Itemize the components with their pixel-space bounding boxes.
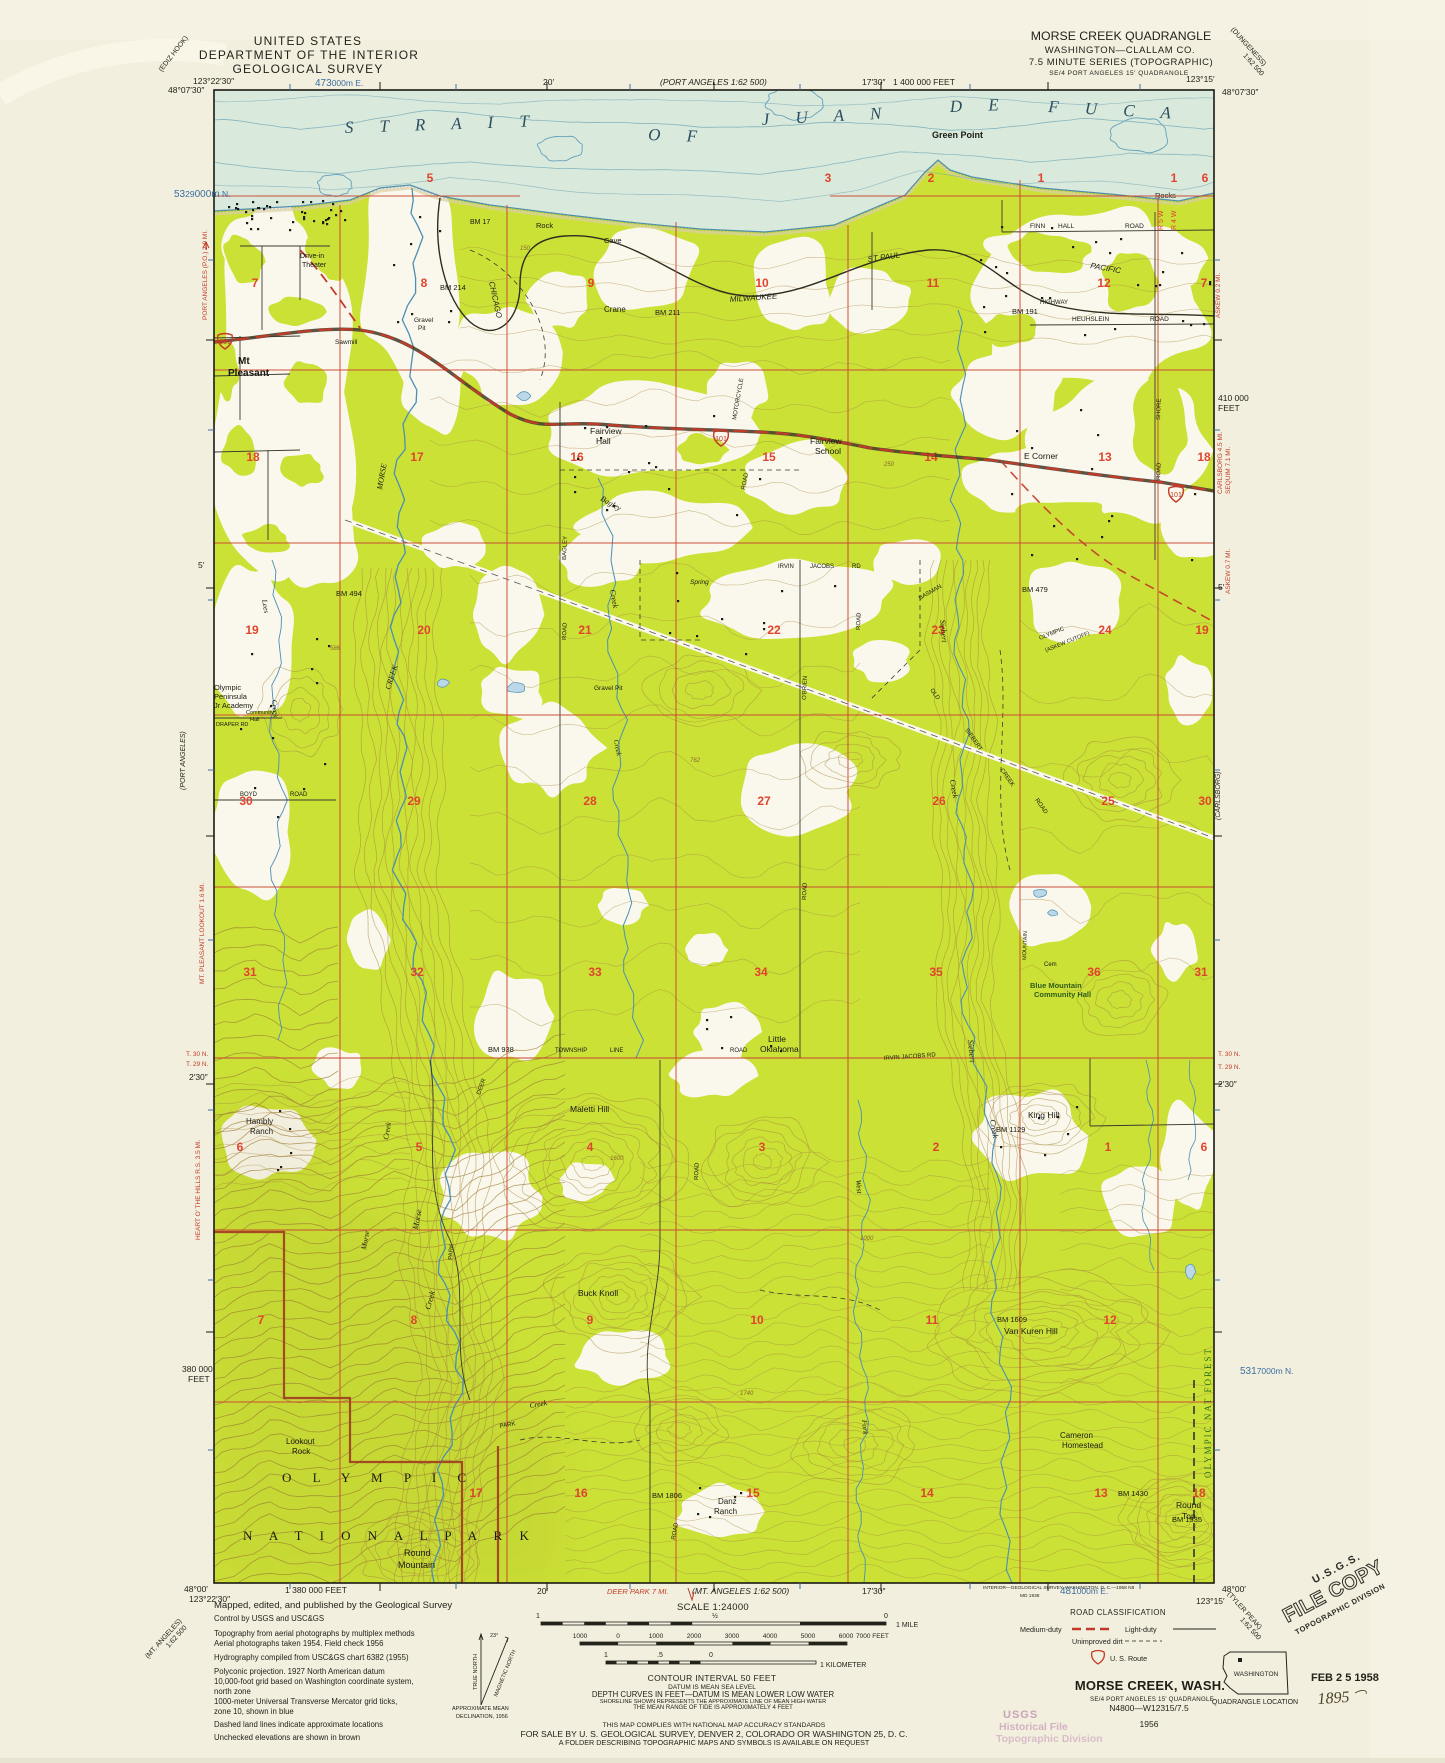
svg-text:Van Kuren Hill: Van Kuren Hill [1004, 1326, 1058, 1336]
svg-text:1: 1 [1105, 1140, 1112, 1154]
svg-text:10: 10 [750, 1313, 764, 1327]
svg-text:O'BRIEN: O'BRIEN [802, 676, 809, 700]
svg-text:473000m E.: 473000m E. [315, 78, 363, 89]
svg-text:SCALE 1:24000: SCALE 1:24000 [677, 1602, 749, 1613]
svg-text:2′30″: 2′30″ [189, 1072, 208, 1082]
svg-text:WASHINGTON: WASHINGTON [1234, 1671, 1279, 1678]
svg-text:6: 6 [1201, 1140, 1208, 1154]
svg-text:GEOLOGICAL SURVEY: GEOLOGICAL SURVEY [232, 62, 383, 76]
svg-text:Hambly: Hambly [246, 1117, 273, 1126]
svg-text:8: 8 [411, 1313, 418, 1327]
svg-text:1895: 1895 [1317, 1689, 1350, 1708]
svg-text:2: 2 [928, 171, 935, 185]
svg-text:13: 13 [1094, 1486, 1108, 1500]
svg-text:17′30″: 17′30″ [862, 1586, 886, 1596]
svg-text:35: 35 [929, 965, 943, 979]
svg-text:101: 101 [715, 436, 727, 443]
svg-text:BM 1609: BM 1609 [997, 1315, 1027, 1324]
svg-text:23°: 23° [490, 1633, 498, 1639]
svg-text:2000: 2000 [687, 1633, 702, 1640]
svg-text:5′: 5′ [198, 560, 205, 570]
svg-text:1: 1 [1038, 171, 1045, 185]
svg-text:King Hill: King Hill [1028, 1110, 1059, 1120]
svg-text:Mountain: Mountain [398, 1560, 435, 1570]
svg-text:29: 29 [407, 794, 421, 808]
svg-text:N A T I O N A L P A R K: N A T I O N A L P A R K [243, 1528, 536, 1543]
svg-text:Aerial photographs taken 1954.: Aerial photographs taken 1954. Field che… [214, 1639, 383, 1648]
svg-text:north zone: north zone [214, 1687, 251, 1696]
svg-text:FINN: FINN [1030, 223, 1045, 230]
svg-text:4: 4 [587, 1140, 594, 1154]
svg-text:30: 30 [1198, 794, 1212, 808]
svg-text:150: 150 [520, 246, 531, 252]
svg-text:BM 214: BM 214 [440, 283, 466, 292]
svg-text:ROAD: ROAD [802, 882, 809, 900]
svg-text:Topographic Division: Topographic Division [996, 1733, 1103, 1745]
svg-text:Pit: Pit [418, 325, 426, 332]
svg-text:BM 1806: BM 1806 [652, 1491, 682, 1500]
svg-text:123°15′: 123°15′ [1186, 74, 1215, 84]
svg-text:9: 9 [587, 1313, 594, 1327]
svg-text:1 MILE: 1 MILE [896, 1622, 919, 1629]
svg-text:21: 21 [578, 623, 592, 637]
svg-text:BM 1129: BM 1129 [996, 1125, 1025, 1134]
svg-text:Historical File: Historical File [999, 1721, 1068, 1733]
svg-text:TRUE NORTH: TRUE NORTH [473, 1654, 479, 1690]
svg-text:HEART O’ THE HILLS R.S. 3.5 MI: HEART O’ THE HILLS R.S. 3.5 MI. [195, 1139, 202, 1240]
svg-text:ROAD: ROAD [1125, 223, 1144, 230]
svg-text:T. 29 N.: T. 29 N. [186, 1061, 209, 1068]
svg-text:WASHINGTON—CLALLAM CO.: WASHINGTON—CLALLAM CO. [1045, 45, 1195, 56]
svg-text:ROAD: ROAD [1150, 316, 1169, 323]
svg-text:West: West [854, 1179, 864, 1195]
svg-text:Medium-duty: Medium-duty [1020, 1625, 1062, 1634]
svg-text:20: 20 [417, 623, 431, 637]
svg-text:11: 11 [926, 1313, 939, 1327]
svg-text:31: 31 [1194, 965, 1208, 979]
svg-text:FEET: FEET [1218, 403, 1240, 413]
svg-text:25: 25 [1101, 794, 1115, 808]
svg-text:INTERIOR—GEOLOGICAL SURVEY, WA: INTERIOR—GEOLOGICAL SURVEY, WASHINGTON, … [983, 1585, 1135, 1591]
svg-text:APPROXIMATE MEAN: APPROXIMATE MEAN [452, 1706, 509, 1712]
svg-text:Green Point: Green Point [932, 130, 983, 140]
svg-text:48°07′30″: 48°07′30″ [168, 85, 204, 95]
svg-text:Hall: Hall [250, 717, 259, 723]
svg-text:12: 12 [1097, 276, 1111, 290]
svg-text:R 5 W: R 5 W [1158, 210, 1165, 230]
svg-text:1600: 1600 [610, 1156, 624, 1162]
svg-text:BM 479: BM 479 [1022, 585, 1048, 594]
svg-text:DRAPER RD: DRAPER RD [216, 722, 248, 728]
svg-text:MD 1938: MD 1938 [1020, 1593, 1040, 1599]
svg-text:HEUHSLEIN: HEUHSLEIN [1072, 316, 1110, 323]
svg-text:7.5 MINUTE SERIES (TOPOGRAPHIC: 7.5 MINUTE SERIES (TOPOGRAPHIC) [1029, 57, 1213, 68]
svg-text:BM 211: BM 211 [655, 308, 680, 317]
svg-text:5000: 5000 [801, 1633, 816, 1640]
svg-text:ROAD: ROAD [290, 792, 308, 798]
svg-text:Community Hall: Community Hall [1034, 990, 1091, 999]
svg-text:250: 250 [883, 462, 895, 468]
svg-text:18: 18 [246, 450, 260, 464]
svg-text:32: 32 [410, 965, 424, 979]
svg-text:7: 7 [258, 1313, 265, 1327]
svg-text:SE/4 PORT ANGELES 15′ QUADRANG: SE/4 PORT ANGELES 15′ QUADRANGLE [1090, 1696, 1214, 1703]
svg-text:0: 0 [616, 1633, 620, 1640]
svg-text:20′: 20′ [537, 1586, 548, 1596]
svg-text:1000: 1000 [649, 1633, 664, 1640]
svg-text:16: 16 [574, 1486, 588, 1500]
svg-text:0: 0 [709, 1652, 713, 1659]
svg-text:3: 3 [759, 1140, 766, 1154]
svg-text:E Corner: E Corner [1024, 451, 1058, 461]
svg-text:Rock: Rock [536, 221, 553, 230]
svg-text:3000: 3000 [725, 1633, 740, 1640]
svg-text:Mapped, edited, and published: Mapped, edited, and published by the Geo… [214, 1600, 452, 1611]
svg-text:7: 7 [1201, 276, 1208, 290]
svg-text:BM 17: BM 17 [470, 219, 490, 226]
svg-text:Homestead: Homestead [1062, 1441, 1103, 1450]
svg-text:1956: 1956 [1140, 1719, 1159, 1729]
svg-text:SHORE: SHORE [1156, 399, 1163, 421]
svg-text:7000 FEET: 7000 FEET [856, 1633, 889, 1640]
svg-text:Polyconic projection. 1927: Polyconic projection. 1927 North America… [214, 1667, 385, 1676]
svg-text:22: 22 [767, 623, 781, 637]
svg-text:Buck Knoll: Buck Knoll [578, 1288, 618, 1298]
svg-text:0: 0 [884, 1613, 888, 1620]
svg-text:27: 27 [757, 794, 771, 808]
svg-text:Fairview: Fairview [810, 436, 843, 446]
svg-text:SE/4 PORT ANGELES 15′ QUADRANG: SE/4 PORT ANGELES 15′ QUADRANGLE [1049, 70, 1189, 77]
svg-text:T. 30 N.: T. 30 N. [1218, 1051, 1241, 1058]
svg-text:DECLINATION, 1956: DECLINATION, 1956 [456, 1714, 508, 1720]
svg-text:1: 1 [536, 1613, 540, 1620]
svg-text:Oklahoma: Oklahoma [760, 1044, 799, 1054]
svg-text:TOWNSHIP: TOWNSHIP [555, 1048, 587, 1054]
svg-text:1 380 000 FEET: 1 380 000 FEET [285, 1585, 347, 1595]
svg-text:ROAD: ROAD [856, 612, 863, 630]
svg-text:Jr Academy: Jr Academy [214, 701, 253, 710]
svg-text:6: 6 [237, 1140, 244, 1154]
svg-text:17′30″: 17′30″ [862, 77, 886, 87]
svg-text:28: 28 [583, 794, 597, 808]
svg-text:1000: 1000 [573, 1633, 588, 1640]
svg-text:Round: Round [1176, 1500, 1201, 1510]
svg-text:3: 3 [825, 171, 832, 185]
svg-text:(PORT ANGELES): (PORT ANGELES) [180, 731, 187, 790]
svg-text:1740: 1740 [740, 1391, 754, 1397]
svg-text:BM 191: BM 191 [1012, 307, 1038, 316]
svg-text:(CARLSBORG): (CARLSBORG) [1215, 771, 1222, 820]
svg-text:IRVIN: IRVIN [778, 564, 794, 570]
svg-text:Olympic: Olympic [214, 683, 241, 692]
svg-text:CARLSBORG 4.5 MI.: CARLSBORG 4.5 MI. [1217, 431, 1224, 494]
svg-text:JACOBS: JACOBS [810, 564, 834, 570]
svg-text:Cem: Cem [1044, 962, 1057, 968]
svg-text:FEB 2 5 1958: FEB 2 5 1958 [1311, 1672, 1379, 1684]
svg-text:1: 1 [1171, 171, 1178, 185]
svg-text:Gravel: Gravel [414, 317, 434, 324]
svg-text:1000-meter Universal Transvers: 1000-meter Universal Transverse Mercator… [214, 1697, 397, 1706]
svg-text:Dashed land lines indicate app: Dashed land lines indicate approximate l… [214, 1720, 383, 1729]
svg-text:Crane: Crane [604, 305, 626, 314]
svg-text:N4800—W12315/7.5: N4800—W12315/7.5 [1109, 1703, 1189, 1713]
svg-text:RD: RD [852, 564, 861, 570]
svg-text:17: 17 [410, 450, 424, 464]
svg-text:T. 29 N.: T. 29 N. [1218, 1064, 1241, 1071]
svg-text:Unchecked elevations are shown: Unchecked elevations are shown in brown [214, 1733, 360, 1742]
svg-text:MT. PLEASANT LOOKOUT 1.6 MI.: MT. PLEASANT LOOKOUT 1.6 MI. [199, 883, 206, 984]
svg-text:5329000m N.: 5329000m N. [174, 189, 230, 200]
svg-text:A FOLDER DESCRIBING TOPOGRAPHI: A FOLDER DESCRIBING TOPOGRAPHIC MAPS AND… [559, 1738, 870, 1747]
svg-text:48°00′: 48°00′ [184, 1584, 208, 1594]
svg-text:.5: .5 [657, 1652, 663, 1659]
svg-text:380 000: 380 000 [182, 1364, 213, 1374]
svg-text:6000: 6000 [839, 1633, 854, 1640]
svg-text:Danz: Danz [718, 1497, 737, 1506]
svg-text:BM 1430: BM 1430 [1118, 1489, 1148, 1498]
svg-text:O L Y M P I C: O L Y M P I C [282, 1470, 475, 1485]
svg-text:26: 26 [932, 794, 946, 808]
svg-text:Topography from aerial photogr: Topography from aerial photographs by mu… [214, 1629, 415, 1638]
svg-text:14: 14 [924, 450, 938, 464]
svg-text:31: 31 [243, 965, 257, 979]
svg-text:U. S. Route: U. S. Route [1110, 1654, 1147, 1663]
svg-text:15: 15 [746, 1486, 760, 1500]
svg-text:Rock: Rock [292, 1447, 311, 1456]
svg-text:MORSE CREEK QUADRANGLE: MORSE CREEK QUADRANGLE [1031, 29, 1211, 43]
svg-text:BOYD: BOYD [240, 792, 258, 798]
svg-text:Mt: Mt [238, 356, 250, 367]
svg-text:13: 13 [1098, 450, 1112, 464]
svg-text:586: 586 [330, 646, 341, 652]
svg-text:ROAD: ROAD [730, 1048, 748, 1054]
svg-text:LINE: LINE [610, 1048, 623, 1054]
svg-text:Drive-in: Drive-in [300, 253, 324, 260]
svg-text:THE MEAN RANGE OF TIDE IS APPR: THE MEAN RANGE OF TIDE IS APPROXIMATELY … [633, 1705, 793, 1711]
svg-text:THIS MAP COMPLIES WITH NATIONA: THIS MAP COMPLIES WITH NATIONAL MAP ACCU… [603, 1722, 826, 1729]
svg-text:CONTOUR INTERVAL 50 FEET: CONTOUR INTERVAL 50 FEET [648, 1673, 777, 1683]
svg-text:Hall: Hall [596, 436, 611, 446]
svg-text:Round: Round [404, 1548, 431, 1558]
svg-text:410 000: 410 000 [1218, 393, 1249, 403]
svg-text:D E: D E [948, 95, 1010, 116]
svg-text:OLYMPIC NAT FOREST: OLYMPIC NAT FOREST [1203, 1347, 1213, 1478]
svg-text:10: 10 [755, 276, 769, 290]
svg-text:School: School [815, 446, 841, 456]
svg-text:101: 101 [219, 339, 231, 346]
svg-text:762: 762 [690, 758, 701, 764]
svg-text:20′: 20′ [543, 77, 554, 87]
svg-text:Control by USGS and USC&GS: Control by USGS and USC&GS [214, 1614, 324, 1623]
svg-text:R 4 W: R 4 W [1171, 210, 1178, 230]
svg-text:1 400 000 FEET: 1 400 000 FEET [893, 77, 955, 87]
svg-text:BAGLEY: BAGLEY [562, 536, 569, 560]
svg-text:Spring: Spring [690, 579, 709, 586]
svg-text:12: 12 [1103, 1313, 1117, 1327]
svg-text:zone 10, shown in blue: zone 10, shown in blue [214, 1707, 294, 1716]
svg-text:18: 18 [1197, 450, 1211, 464]
svg-text:(MT. ANGELES 1:62 500): (MT. ANGELES 1:62 500) [692, 1586, 789, 1596]
svg-text:Ranch: Ranch [714, 1507, 737, 1516]
svg-text:33: 33 [588, 965, 602, 979]
svg-text:6: 6 [1202, 171, 1209, 185]
svg-text:BM 494: BM 494 [336, 589, 362, 598]
svg-text:ASKEW 0.7 MI.: ASKEW 0.7 MI. [1225, 549, 1232, 594]
svg-text:Unimproved dirt: Unimproved dirt [1072, 1637, 1123, 1646]
svg-text:Blue Mountain: Blue Mountain [1030, 981, 1082, 990]
svg-text:Sawmill: Sawmill [335, 339, 358, 346]
svg-text:Maletti Hill: Maletti Hill [570, 1104, 609, 1114]
svg-text:10,000-foot grid based on Wash: 10,000-foot grid based on Washington coo… [214, 1677, 414, 1686]
svg-text:24: 24 [1098, 623, 1112, 637]
svg-text:½: ½ [712, 1612, 718, 1620]
svg-text:8: 8 [421, 276, 428, 290]
svg-text:48°00′: 48°00′ [1222, 1584, 1246, 1594]
svg-text:4000: 4000 [763, 1633, 778, 1640]
svg-text:Pleasant: Pleasant [228, 368, 270, 379]
svg-text:Cameron: Cameron [1060, 1431, 1093, 1440]
svg-text:Fairview: Fairview [590, 426, 623, 436]
svg-text:ROAD: ROAD [1156, 462, 1163, 480]
svg-text:17: 17 [469, 1486, 483, 1500]
svg-text:Community: Community [246, 710, 274, 716]
svg-text:5317000m N.: 5317000m N. [1240, 1366, 1294, 1377]
svg-text:Light-duty: Light-duty [1125, 1625, 1157, 1634]
svg-text:481000m E.: 481000m E. [1060, 1586, 1108, 1597]
svg-text:ROAD CLASSIFICATION: ROAD CLASSIFICATION [1070, 1608, 1166, 1617]
svg-text:Gravel Pit: Gravel Pit [594, 685, 623, 692]
svg-text:19: 19 [1195, 623, 1209, 637]
svg-text:Hydrography compiled from USC&: Hydrography compiled from USC&GS chart 6… [214, 1653, 409, 1662]
svg-text:FEET: FEET [188, 1374, 210, 1384]
svg-text:ROAD: ROAD [562, 622, 569, 640]
svg-text:5: 5 [427, 171, 434, 185]
svg-text:9: 9 [588, 276, 595, 290]
svg-text:SEQUIM 7.1 MI.: SEQUIM 7.1 MI. [1225, 446, 1232, 494]
svg-text:34: 34 [754, 965, 768, 979]
svg-text:MOUNTAIN: MOUNTAIN [1022, 931, 1029, 960]
svg-text:DEER PARK 7 MI.: DEER PARK 7 MI. [607, 1587, 669, 1596]
svg-text:Lookout: Lookout [286, 1437, 315, 1446]
svg-text:Theater: Theater [302, 262, 327, 269]
svg-text:Creek: Creek [270, 699, 281, 718]
svg-text:Top: Top [1182, 1511, 1196, 1521]
svg-text:DEPTH CURVES IN FEET—DATUM IS: DEPTH CURVES IN FEET—DATUM IS MEAN LOWER… [592, 1690, 835, 1699]
svg-text:ROAD: ROAD [694, 1162, 701, 1180]
svg-text:MORSE CREEK, WASH.: MORSE CREEK, WASH. [1075, 1678, 1225, 1693]
svg-text:36: 36 [1087, 965, 1101, 979]
svg-text:Peninsula: Peninsula [214, 692, 248, 701]
svg-text:HALL: HALL [1058, 223, 1075, 230]
svg-text:14: 14 [920, 1486, 934, 1500]
svg-text:123°15′: 123°15′ [1196, 1596, 1225, 1606]
svg-text:19: 19 [245, 623, 259, 637]
svg-text:O F: O F [648, 125, 709, 146]
svg-text:7: 7 [252, 276, 259, 290]
svg-text:2: 2 [933, 1140, 940, 1154]
svg-text:1 KILOMETER: 1 KILOMETER [820, 1662, 866, 1669]
svg-text:16: 16 [570, 450, 584, 464]
svg-text:(PORT ANGELES 1:62 500): (PORT ANGELES 1:62 500) [660, 77, 767, 87]
svg-text:2′30″: 2′30″ [1218, 1079, 1237, 1089]
svg-text:1: 1 [604, 1652, 608, 1659]
svg-text:Ranch: Ranch [250, 1127, 273, 1136]
svg-text:15: 15 [762, 450, 776, 464]
svg-text:11: 11 [927, 276, 940, 290]
svg-text:Fork: Fork [860, 1418, 870, 1435]
svg-text:USGS: USGS [1003, 1709, 1038, 1721]
svg-text:5: 5 [416, 1140, 423, 1154]
svg-text:DEPARTMENT OF THE INTERIOR: DEPARTMENT OF THE INTERIOR [199, 48, 419, 62]
svg-text:HIGHWAY: HIGHWAY [1040, 300, 1068, 306]
svg-text:QUADRANGLE LOCATION: QUADRANGLE LOCATION [1212, 1699, 1298, 1706]
svg-text:ASKEW 0.2 MI.: ASKEW 0.2 MI. [1215, 273, 1222, 318]
svg-text:UNITED STATES: UNITED STATES [254, 34, 363, 48]
svg-text:1000: 1000 [860, 1236, 874, 1242]
svg-text:5′: 5′ [1218, 582, 1225, 592]
svg-text:T. 30 N.: T. 30 N. [186, 1051, 209, 1058]
svg-text:BM 938: BM 938 [488, 1045, 514, 1054]
svg-text:101: 101 [1170, 492, 1182, 499]
svg-text:Little: Little [768, 1034, 786, 1044]
svg-text:48°07′30″: 48°07′30″ [1222, 87, 1258, 97]
